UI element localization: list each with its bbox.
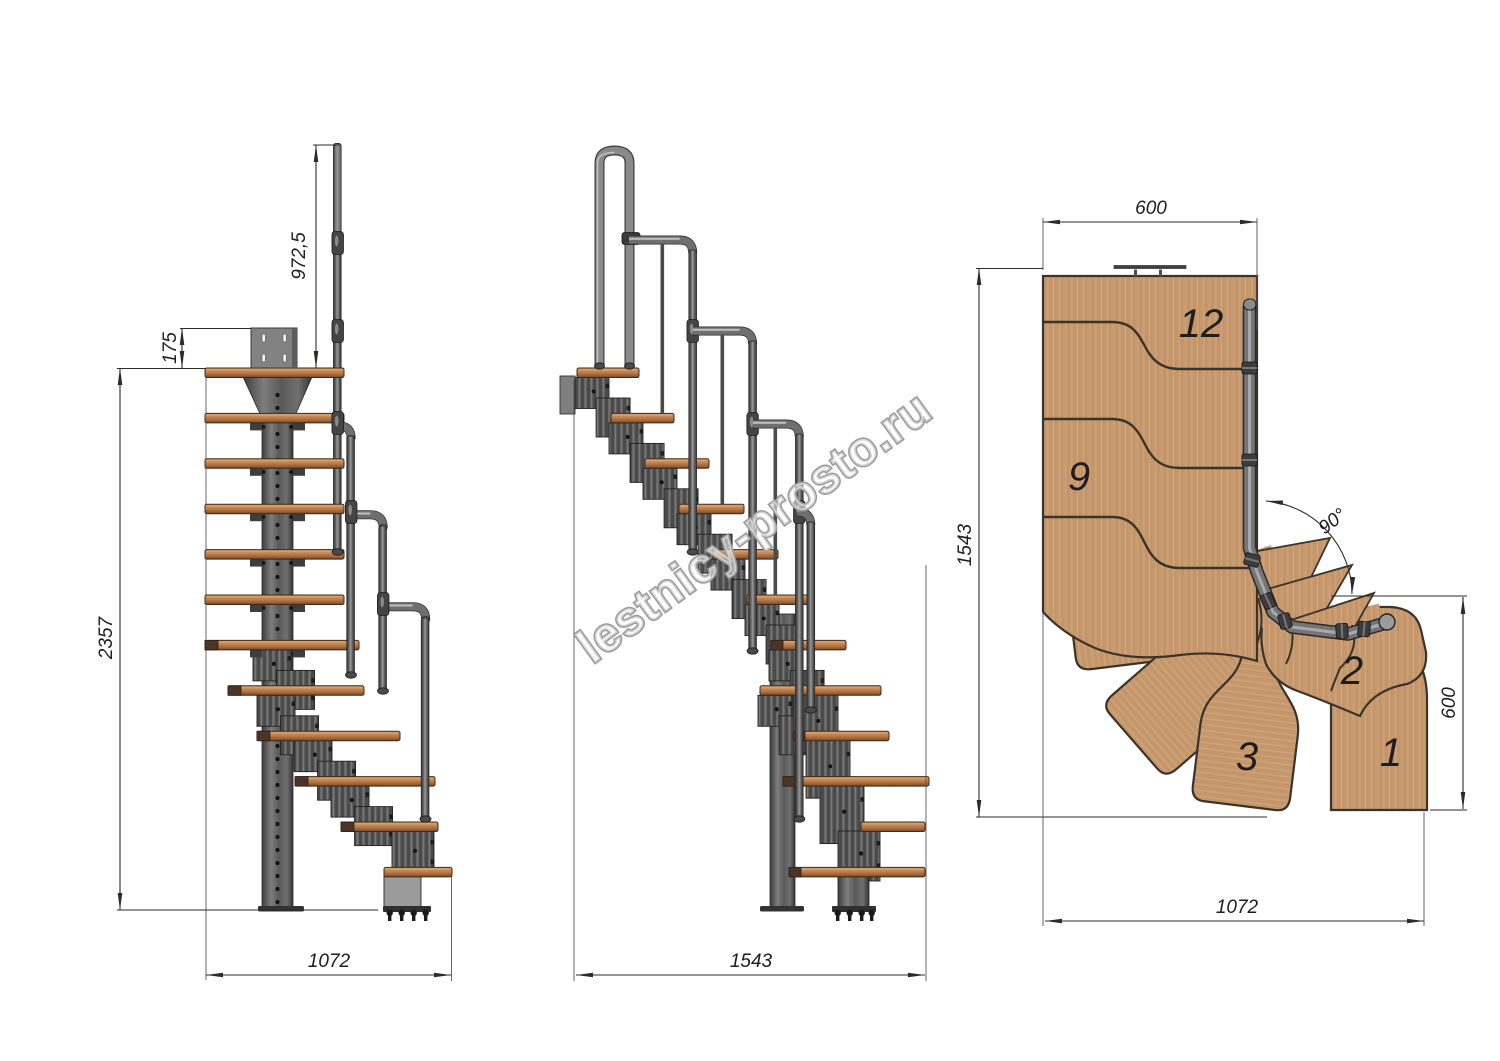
svg-text:600: 600 bbox=[1439, 687, 1460, 719]
svg-text:600: 600 bbox=[1135, 198, 1167, 219]
svg-text:972,5: 972,5 bbox=[289, 232, 310, 280]
svg-text:175: 175 bbox=[160, 332, 181, 364]
svg-text:1543: 1543 bbox=[955, 523, 976, 566]
svg-text:1543: 1543 bbox=[730, 951, 773, 972]
svg-text:2357: 2357 bbox=[96, 615, 117, 660]
svg-text:12: 12 bbox=[1179, 302, 1224, 346]
svg-text:9: 9 bbox=[1068, 455, 1090, 499]
svg-text:1072: 1072 bbox=[1216, 897, 1259, 918]
svg-text:2: 2 bbox=[1340, 649, 1363, 693]
svg-text:3: 3 bbox=[1236, 735, 1258, 779]
svg-text:1072: 1072 bbox=[308, 951, 351, 972]
svg-text:1: 1 bbox=[1380, 731, 1402, 775]
